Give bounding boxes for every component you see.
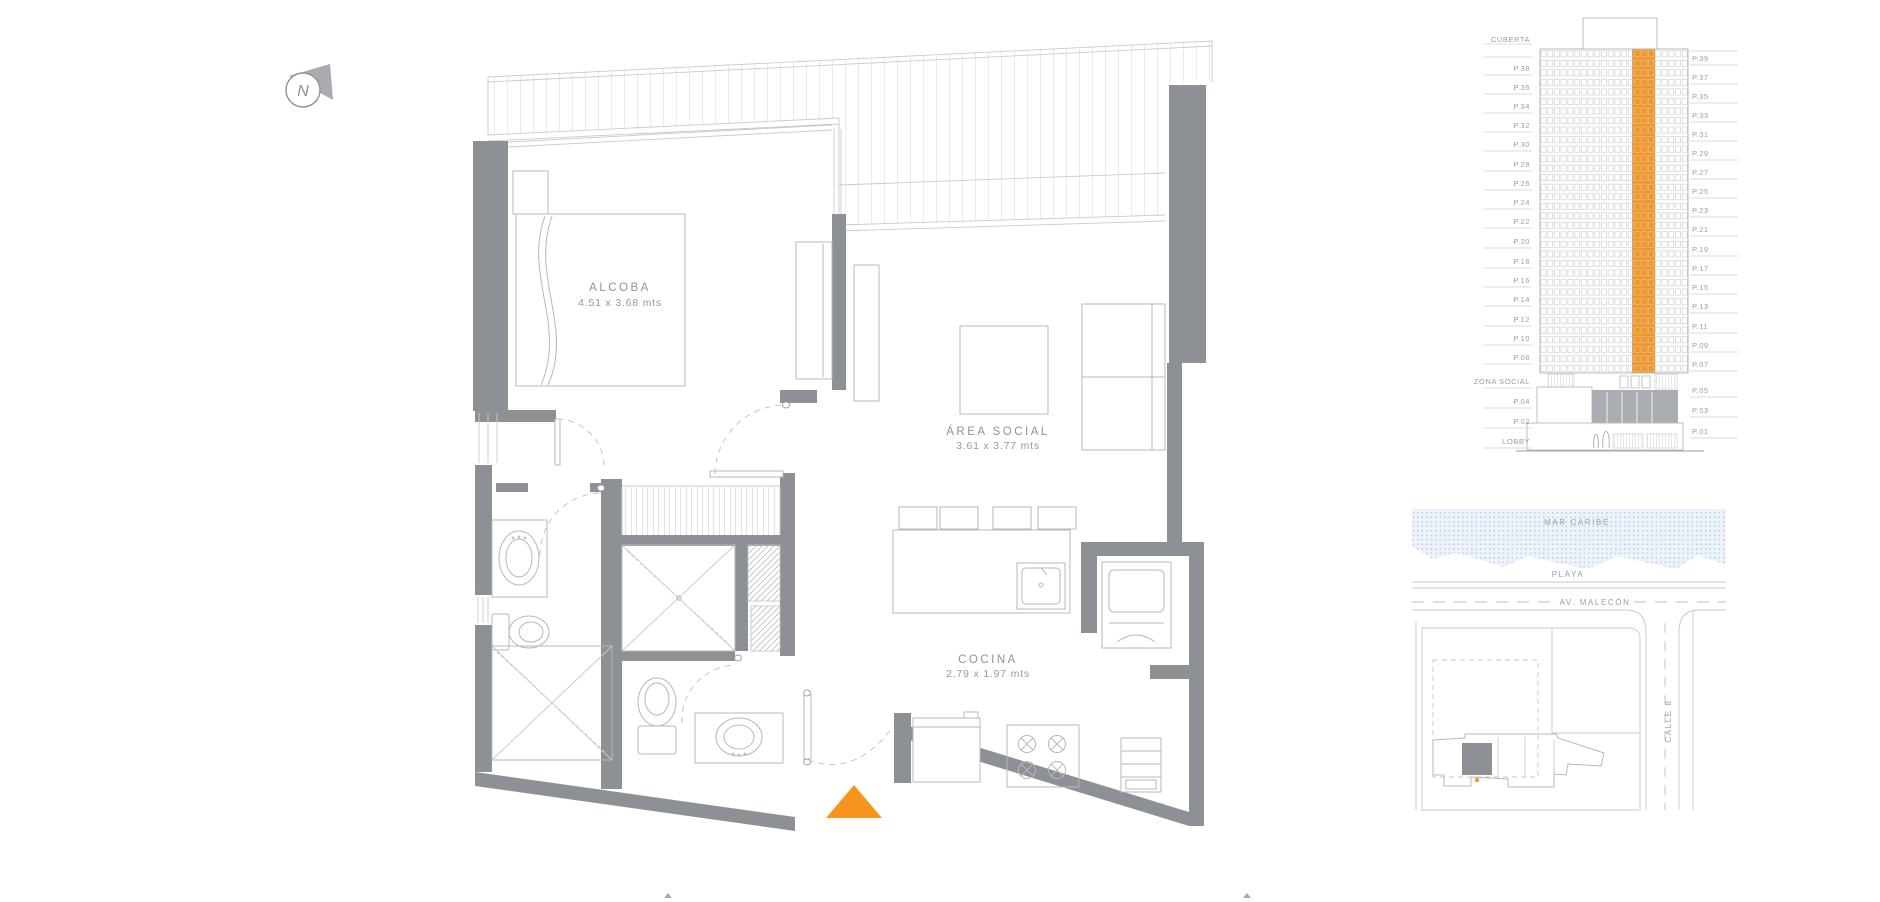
beach-label: PLAYA xyxy=(1552,570,1585,579)
svg-text:P.02: P.02 xyxy=(1513,417,1530,426)
svg-text:LOBBY: LOBBY xyxy=(1502,437,1530,446)
svg-text:P.09: P.09 xyxy=(1692,341,1709,350)
svg-text:P.04: P.04 xyxy=(1513,397,1530,406)
north-compass: N xyxy=(270,48,340,110)
bathroom-2 xyxy=(638,678,783,763)
bed xyxy=(513,171,685,386)
svg-text:P.28: P.28 xyxy=(1513,160,1530,169)
area-social-dimensions: 3.61 x 3.77 mts xyxy=(956,440,1040,452)
brochure-page: N xyxy=(0,0,1880,902)
svg-text:P.30: P.30 xyxy=(1513,140,1530,149)
floor-labels-right: P.39 P.37 P.35 P.33 P.31 P.29 P.27 P.25 … xyxy=(1692,54,1709,436)
svg-text:P.11: P.11 xyxy=(1692,322,1708,331)
svg-text:P.23: P.23 xyxy=(1692,206,1709,215)
highlighted-unit-footprint xyxy=(1462,743,1492,775)
sofa xyxy=(1082,304,1165,450)
svg-text:ZONA SOCIAL: ZONA SOCIAL xyxy=(1474,377,1530,386)
building-elevation: CUBERTA P.38 P.36 P.34 P.32 P.30 P.28 P.… xyxy=(1470,10,1740,465)
avenue: AV. MALECÓN xyxy=(1412,582,1726,632)
svg-text:CUBERTA: CUBERTA xyxy=(1491,35,1531,44)
doors xyxy=(540,402,891,765)
drawer-cabinet xyxy=(1121,738,1161,792)
svg-text:P.31: P.31 xyxy=(1692,130,1709,139)
svg-text:P.24: P.24 xyxy=(1513,198,1530,207)
cocina-dimensions: 2.79 x 1.97 mts xyxy=(946,668,1030,680)
svg-text:P.03: P.03 xyxy=(1692,406,1709,415)
compass-north-label: N xyxy=(297,83,309,100)
duct-shafts xyxy=(748,545,780,651)
coffee-table xyxy=(960,326,1048,414)
svg-text:P.21: P.21 xyxy=(1692,225,1709,234)
svg-text:P.15: P.15 xyxy=(1692,283,1709,292)
svg-text:P.17: P.17 xyxy=(1692,264,1709,273)
alcoba-dimensions: 4.51 x 3.68 mts xyxy=(578,297,662,309)
bathroom-1 xyxy=(492,520,612,760)
svg-text:P.18: P.18 xyxy=(1513,257,1530,266)
svg-text:P.38: P.38 xyxy=(1513,64,1530,73)
street-label: CALLE 8 xyxy=(1664,699,1673,742)
svg-text:P.33: P.33 xyxy=(1692,111,1709,120)
svg-text:P.19: P.19 xyxy=(1692,245,1709,254)
area-social-label: ÁREA SOCIAL xyxy=(946,425,1050,438)
svg-text:P.10: P.10 xyxy=(1513,334,1530,343)
svg-text:P.22: P.22 xyxy=(1513,217,1530,226)
closet-hatch xyxy=(622,486,780,535)
svg-text:P.13: P.13 xyxy=(1692,302,1709,311)
svg-text:P.35: P.35 xyxy=(1692,92,1709,101)
entrance-arrow-icon xyxy=(826,785,882,818)
avenue-label: AV. MALECÓN xyxy=(1560,598,1631,607)
svg-text:P.12: P.12 xyxy=(1513,315,1530,324)
svg-text:P.36: P.36 xyxy=(1513,83,1530,92)
tv-console xyxy=(854,265,879,401)
city-block xyxy=(1422,628,1640,810)
wardrobe xyxy=(796,242,832,379)
svg-text:P.37: P.37 xyxy=(1692,73,1709,82)
svg-text:P.32: P.32 xyxy=(1513,121,1530,130)
location-map: MAR CARIBE PLAYA AV. MALECÓN CALLE 8 xyxy=(1408,503,1730,818)
podium xyxy=(1516,374,1704,451)
alcoba-label: ALCOBA xyxy=(589,282,651,294)
svg-text:P.16: P.16 xyxy=(1513,276,1530,285)
laundry-cabinet xyxy=(1102,562,1171,648)
cocina-label: COCINA xyxy=(958,654,1018,666)
unit-entrance-dot xyxy=(1475,778,1479,782)
floor-labels-left: CUBERTA P.38 P.36 P.34 P.32 P.30 P.28 P.… xyxy=(1474,35,1531,446)
svg-text:P.25: P.25 xyxy=(1692,187,1709,196)
svg-text:P.07: P.07 xyxy=(1692,360,1709,369)
dimension-tick-right xyxy=(1243,893,1251,898)
svg-text:P.34: P.34 xyxy=(1513,102,1530,111)
building-footprint xyxy=(1433,734,1604,787)
floor-plan: ALCOBA 4.51 x 3.68 mts ÁREA SOCIAL 3.61 … xyxy=(455,25,1235,835)
svg-text:P.26: P.26 xyxy=(1513,179,1530,188)
svg-text:P.27: P.27 xyxy=(1692,168,1709,177)
refrigerator xyxy=(913,712,980,782)
dimension-tick-left xyxy=(664,893,672,898)
sea-label: MAR CARIBE xyxy=(1544,518,1610,527)
svg-text:P.05: P.05 xyxy=(1692,386,1709,395)
svg-text:P.08: P.08 xyxy=(1513,353,1530,362)
shower-2 xyxy=(622,545,735,651)
svg-text:P.39: P.39 xyxy=(1692,54,1709,63)
svg-text:P.20: P.20 xyxy=(1513,237,1530,246)
tower xyxy=(1540,18,1688,373)
svg-text:P.14: P.14 xyxy=(1513,295,1530,304)
svg-text:P.01: P.01 xyxy=(1692,427,1709,436)
terrace-hatch-band xyxy=(488,41,1213,231)
svg-text:P.29: P.29 xyxy=(1692,149,1709,158)
sea: MAR CARIBE xyxy=(1412,509,1726,569)
kitchen-island xyxy=(893,507,1076,613)
